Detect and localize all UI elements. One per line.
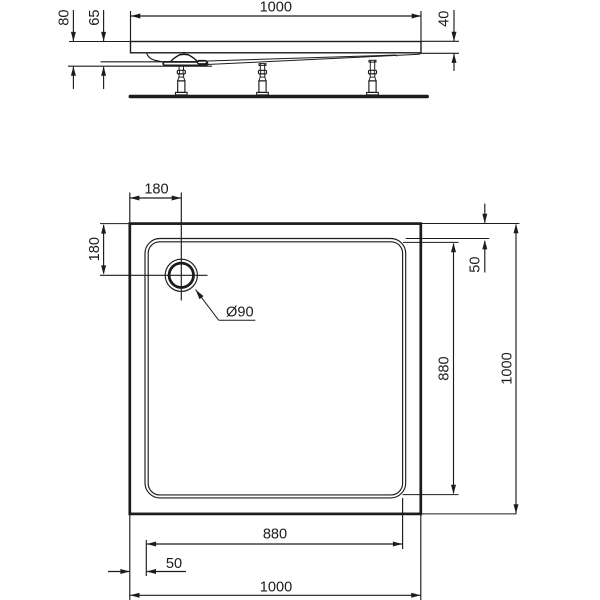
svg-text:65: 65 [87,9,103,25]
svg-text:1000: 1000 [500,352,516,384]
svg-text:50: 50 [468,256,484,272]
svg-text:80: 80 [56,9,72,25]
svg-text:40: 40 [437,11,453,27]
svg-text:880: 880 [436,356,452,380]
svg-text:Ø90: Ø90 [226,304,254,320]
svg-text:180: 180 [144,182,168,198]
svg-text:880: 880 [263,527,287,543]
svg-text:1000: 1000 [260,0,292,16]
svg-text:50: 50 [166,556,182,572]
svg-text:180: 180 [87,237,103,261]
svg-text:1000: 1000 [260,580,292,596]
